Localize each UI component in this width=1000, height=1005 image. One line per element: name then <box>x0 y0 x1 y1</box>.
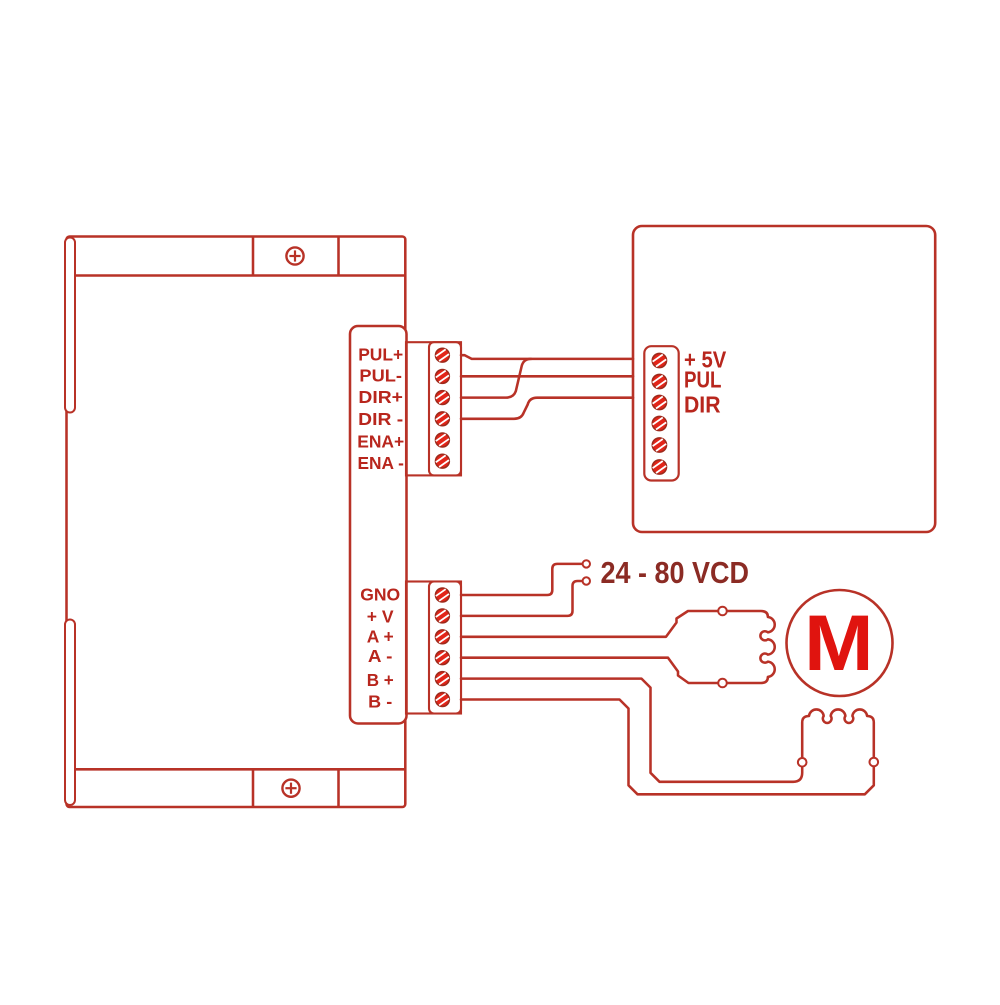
svg-text:M: M <box>804 599 874 687</box>
svg-text:DIR: DIR <box>684 392 721 418</box>
svg-text:B +: B + <box>367 670 394 690</box>
svg-text:DIR -: DIR - <box>358 409 403 429</box>
svg-text:GNO: GNO <box>360 585 400 605</box>
svg-text:PUL: PUL <box>684 366 722 392</box>
svg-text:24 - 80 VCD: 24 - 80 VCD <box>601 557 750 590</box>
svg-text:PUL-: PUL- <box>359 365 402 385</box>
svg-text:DIR+: DIR+ <box>358 387 403 407</box>
svg-text:ENA -: ENA - <box>357 453 404 473</box>
svg-text:A +: A + <box>367 627 394 647</box>
svg-text:+ V: + V <box>367 607 394 627</box>
svg-text:ENA+: ENA+ <box>357 431 404 451</box>
svg-text:B -: B - <box>368 692 392 712</box>
svg-text:A -: A - <box>368 646 393 666</box>
svg-text:PUL+: PUL+ <box>358 344 403 364</box>
